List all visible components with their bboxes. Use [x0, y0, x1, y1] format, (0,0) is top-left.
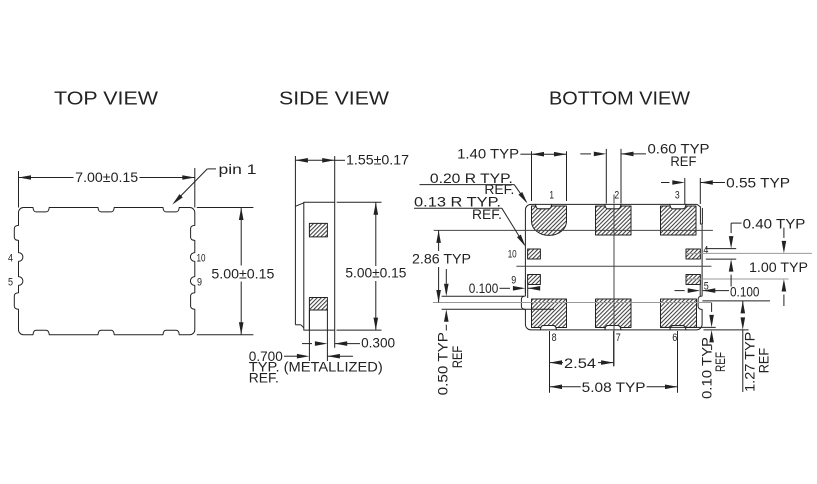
svg-text:REF: REF: [449, 346, 465, 368]
svg-text:2.54: 2.54: [564, 355, 596, 371]
svg-text:REF: REF: [670, 153, 696, 169]
svg-text:2.86 TYP: 2.86 TYP: [412, 251, 471, 267]
svg-text:REF: REF: [712, 352, 728, 372]
svg-text:5: 5: [8, 277, 13, 289]
svg-text:0.300: 0.300: [361, 334, 395, 350]
svg-text:3: 3: [675, 189, 680, 201]
svg-text:5.00±0.15: 5.00±0.15: [211, 265, 274, 281]
svg-text:BOTTOM VIEW: BOTTOM VIEW: [549, 88, 691, 109]
svg-text:8: 8: [552, 332, 557, 344]
svg-text:0.100: 0.100: [730, 283, 760, 299]
svg-text:6: 6: [672, 332, 677, 344]
svg-text:5.00±0.15: 5.00±0.15: [345, 265, 406, 281]
svg-text:1.55±0.17: 1.55±0.17: [346, 152, 409, 168]
svg-text:10: 10: [508, 249, 517, 261]
svg-text:0.100: 0.100: [469, 280, 499, 296]
svg-text:7.00±0.15: 7.00±0.15: [75, 169, 138, 185]
svg-text:4: 4: [703, 245, 708, 257]
svg-text:9: 9: [511, 274, 516, 286]
svg-text:0.40 TYP: 0.40 TYP: [743, 215, 806, 231]
svg-text:pin 1: pin 1: [219, 161, 257, 177]
svg-text:7: 7: [616, 332, 621, 344]
svg-text:SIDE VIEW: SIDE VIEW: [279, 88, 390, 109]
svg-text:0.50 TYP: 0.50 TYP: [434, 332, 450, 395]
svg-text:0.55 TYP: 0.55 TYP: [726, 174, 790, 190]
svg-text:1.40 TYP: 1.40 TYP: [457, 145, 519, 161]
svg-text:TOP VIEW: TOP VIEW: [54, 88, 159, 109]
svg-text:1.00 TYP: 1.00 TYP: [749, 259, 808, 275]
svg-text:5.08 TYP: 5.08 TYP: [582, 379, 646, 395]
svg-text:10: 10: [197, 253, 206, 265]
svg-text:1: 1: [549, 189, 554, 201]
svg-text:4: 4: [8, 253, 13, 265]
svg-text:2: 2: [614, 189, 619, 201]
svg-text:9: 9: [197, 277, 202, 289]
svg-text:REF.: REF.: [249, 370, 279, 386]
svg-text:REF: REF: [755, 348, 771, 373]
